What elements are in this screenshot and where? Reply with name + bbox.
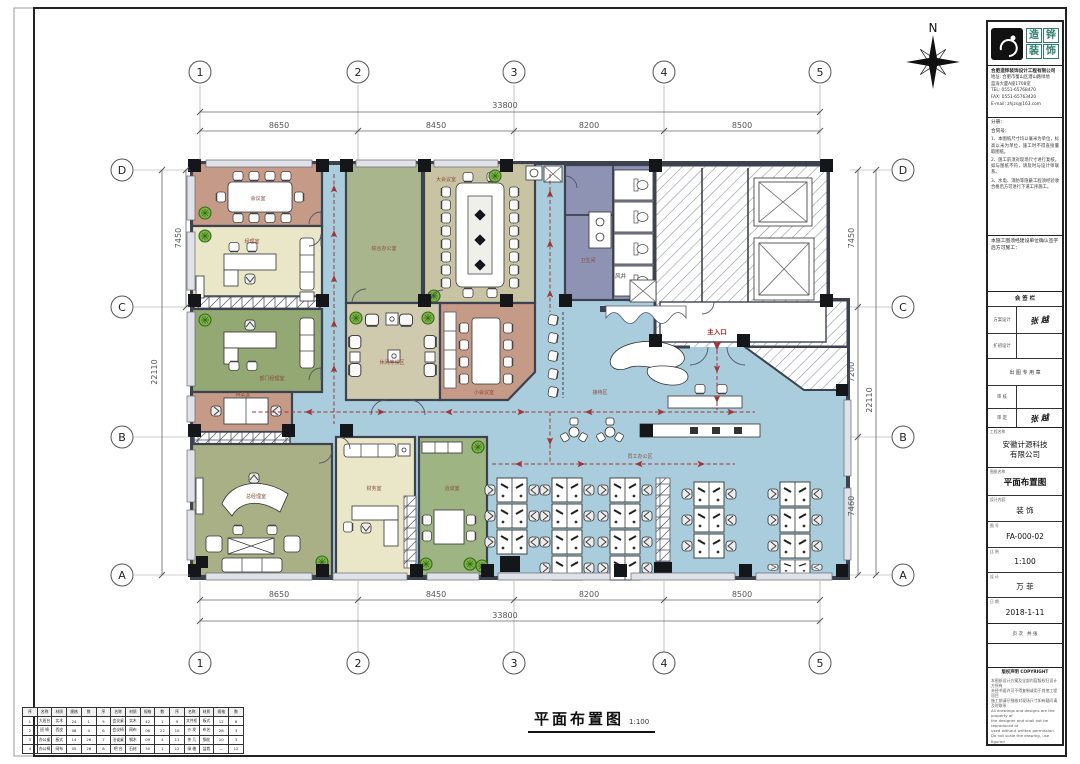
signature: 张 越 xyxy=(1030,314,1050,327)
drawing-title: 平面布置图1:100 xyxy=(528,708,655,733)
drawing-scale: 1:100 xyxy=(1014,557,1036,566)
room-label: 接待区 xyxy=(592,389,607,396)
utility-shafts xyxy=(526,166,562,182)
svg-text:D: D xyxy=(899,164,907,177)
svg-text:B: B xyxy=(118,431,126,444)
field-label: 页 次 xyxy=(1013,631,1023,637)
floor-plan-drawing: .fw{fill:#fff;stroke:#333;stroke-width:.… xyxy=(0,0,1080,764)
svg-text:22110: 22110 xyxy=(865,387,874,412)
room-label: 财务室 xyxy=(366,485,381,492)
svg-text:8200: 8200 xyxy=(579,590,599,599)
copyright-title: 版权声明 COPYRIGHT xyxy=(991,670,1059,676)
room-label: 部门经理室 xyxy=(259,375,284,382)
room-gm-office xyxy=(192,444,332,576)
room-general-office xyxy=(346,163,422,303)
svg-text:3: 3 xyxy=(511,657,518,670)
svg-text:2: 2 xyxy=(355,66,362,79)
svg-text:5: 5 xyxy=(817,66,824,79)
room-label: 总经理室 xyxy=(246,493,266,500)
signature: 张 越 xyxy=(1030,412,1050,425)
room-label: 小会议室 xyxy=(474,389,494,396)
sign-row-label: 审 核 xyxy=(988,386,1017,408)
field-label: 设 计 xyxy=(990,574,999,580)
signature-table: 会 签 栏 方案设计 张 越 扩初设计 出 图 专 用 章 审 核 审 定 张 … xyxy=(988,292,1062,428)
room-label: 经理室 xyxy=(244,238,259,245)
svg-text:33800: 33800 xyxy=(492,101,517,110)
svg-text:8450: 8450 xyxy=(426,590,446,599)
svg-text:5: 5 xyxy=(817,657,824,670)
main-entrance-label: 主入口 xyxy=(707,327,727,336)
drawing-name: 平面布置图 xyxy=(1004,478,1047,489)
drawing-number: FA-000-02 xyxy=(1006,532,1044,541)
brand-char: 造 xyxy=(1026,28,1042,43)
project-info: 工程名称 安徽计源科技 有限公司 图纸名称 平面布置图 设计内容 装 饰 图 号… xyxy=(988,428,1062,624)
room-label: 综合办公室 xyxy=(371,245,396,252)
svg-text:8650: 8650 xyxy=(269,121,289,130)
company-contact: 合肥造铧装饰设计工程有限公司 地址: 合肥市蜀山区潜山路绿地 蓝海大厦A座170… xyxy=(988,66,1062,118)
svg-text:7450: 7450 xyxy=(174,228,183,248)
room-label: 会议室 xyxy=(250,195,265,202)
svg-text:B: B xyxy=(899,431,907,444)
svg-text:22110: 22110 xyxy=(150,359,159,384)
svg-text:8450: 8450 xyxy=(426,121,446,130)
project-name: 有限公司 xyxy=(1010,450,1040,459)
brand-char: 饰 xyxy=(1043,44,1059,59)
svg-text:1: 1 xyxy=(197,657,204,670)
air-shaft-label: 风井 xyxy=(615,272,627,280)
drawing-date: 2018-1-11 xyxy=(1006,608,1045,617)
field-label: 工程名称 xyxy=(990,429,1005,435)
sign-row-label: 审 定 xyxy=(988,409,1017,427)
room-label: 大会议室 xyxy=(436,176,456,183)
svg-text:8200: 8200 xyxy=(579,121,599,130)
project-name: 安徽计源科技 xyxy=(1003,440,1048,449)
svg-text:2: 2 xyxy=(355,657,362,670)
page-count: 共 张 xyxy=(1027,631,1037,637)
field-label: 图 号 xyxy=(990,523,999,529)
cabinet-strip xyxy=(194,432,290,444)
field-label: 比 例 xyxy=(990,549,999,555)
drawing-sheet: .fw{fill:#fff;stroke:#333;stroke-width:.… xyxy=(0,0,1080,764)
notes-label: 分册： xyxy=(991,120,1059,127)
sign-row-label: 扩初设计 xyxy=(988,334,1017,358)
general-notes: 分册： 合同号： 1、本图纸尺寸均以毫米为单位，标高以米为单位，施工时不得直接量… xyxy=(988,118,1062,236)
svg-text:4: 4 xyxy=(661,657,668,670)
svg-text:8650: 8650 xyxy=(269,590,289,599)
elevator-2 xyxy=(754,238,814,300)
brand-name: 造 铧 装 饰 xyxy=(1026,28,1059,59)
svg-text:7450: 7450 xyxy=(847,228,856,248)
design-stage: 装 饰 xyxy=(1016,506,1033,515)
svg-text:D: D xyxy=(118,164,126,177)
room-label: 员工办公区 xyxy=(627,453,652,460)
room-label: 卫生间 xyxy=(580,257,595,264)
room-label: 洽谈室 xyxy=(444,485,459,492)
svg-text:33800: 33800 xyxy=(492,611,517,620)
elevator-1 xyxy=(754,178,812,226)
room-label: 休闲等候区 xyxy=(379,359,404,366)
drawing-title-text: 平面布置图 xyxy=(534,710,624,728)
drawing-title-scale: 1:100 xyxy=(629,718,649,726)
page-number-row: 页 次 共 张 xyxy=(988,624,1062,644)
svg-text:A: A xyxy=(118,569,126,582)
legend-table: 序名称材质规格数序名称材质规格数序名称材质规格数1大班台实木2415会议桌实木4… xyxy=(22,707,244,754)
svg-text:1: 1 xyxy=(197,66,204,79)
signature-header: 会 签 栏 xyxy=(988,292,1062,307)
field-label: 图纸名称 xyxy=(990,469,1005,475)
brand-char: 装 xyxy=(1026,44,1042,59)
title-block: 造 铧 装 饰 合肥造铧装饰设计工程有限公司 地址: 合肥市蜀山区潜山路绿地 蓝… xyxy=(986,20,1064,746)
copyright-lines: 本图纸设计方案及全部内容版权归设计方所有未经书面许可不得复制或用于其他工程项目施… xyxy=(991,678,1059,744)
room-talk xyxy=(419,437,487,576)
svg-text:4: 4 xyxy=(661,66,668,79)
svg-text:C: C xyxy=(899,301,907,314)
copyright-notes: 版权声明 COPYRIGHT 本图纸设计方案及全部内容版权归设计方所有未经书面许… xyxy=(988,668,1062,744)
signature xyxy=(1017,334,1062,358)
notes-label: 合同号： xyxy=(991,129,1059,136)
company-fax: FAX: 0551-65763420 xyxy=(991,95,1059,102)
north-label: N xyxy=(929,21,938,35)
brand-char: 铧 xyxy=(1043,28,1059,43)
notes-list: 1、本图纸尺寸均以毫米为单位，标高以米为单位，施工时不得直接量取图纸。2、施工前… xyxy=(991,137,1059,191)
svg-text:C: C xyxy=(118,301,126,314)
field-label: 设计内容 xyxy=(990,497,1005,503)
designer-name: 万 菲 xyxy=(1016,582,1033,591)
svg-text:8500: 8500 xyxy=(732,590,752,599)
north-arrow-icon: N xyxy=(906,21,960,89)
stamp-band: 出 图 专 用 章 xyxy=(988,359,1062,386)
svg-text:3: 3 xyxy=(511,66,518,79)
core-elevator-zone xyxy=(655,165,848,365)
company-email: E-mail: zhjzs@163.com xyxy=(991,102,1059,109)
company-address: 地址: 合肥市蜀山区潜山路绿地 xyxy=(991,75,1059,82)
spacer xyxy=(988,644,1062,668)
svg-text:7460: 7460 xyxy=(847,496,856,516)
sign-row-label: 方案设计 xyxy=(988,307,1017,333)
company-logo-section: 造 铧 装 饰 xyxy=(988,22,1062,66)
field-label: 日 期 xyxy=(990,599,999,605)
svg-text:7200: 7200 xyxy=(847,362,856,382)
room-label: 档案室 xyxy=(235,391,250,398)
owner-confirm-note: 本施工图须经建设单位确认签字后方可施工： xyxy=(988,236,1062,292)
company-logo-icon xyxy=(991,28,1023,60)
svg-text:8500: 8500 xyxy=(732,121,752,130)
signature xyxy=(1017,386,1062,408)
svg-text:A: A xyxy=(899,569,907,582)
